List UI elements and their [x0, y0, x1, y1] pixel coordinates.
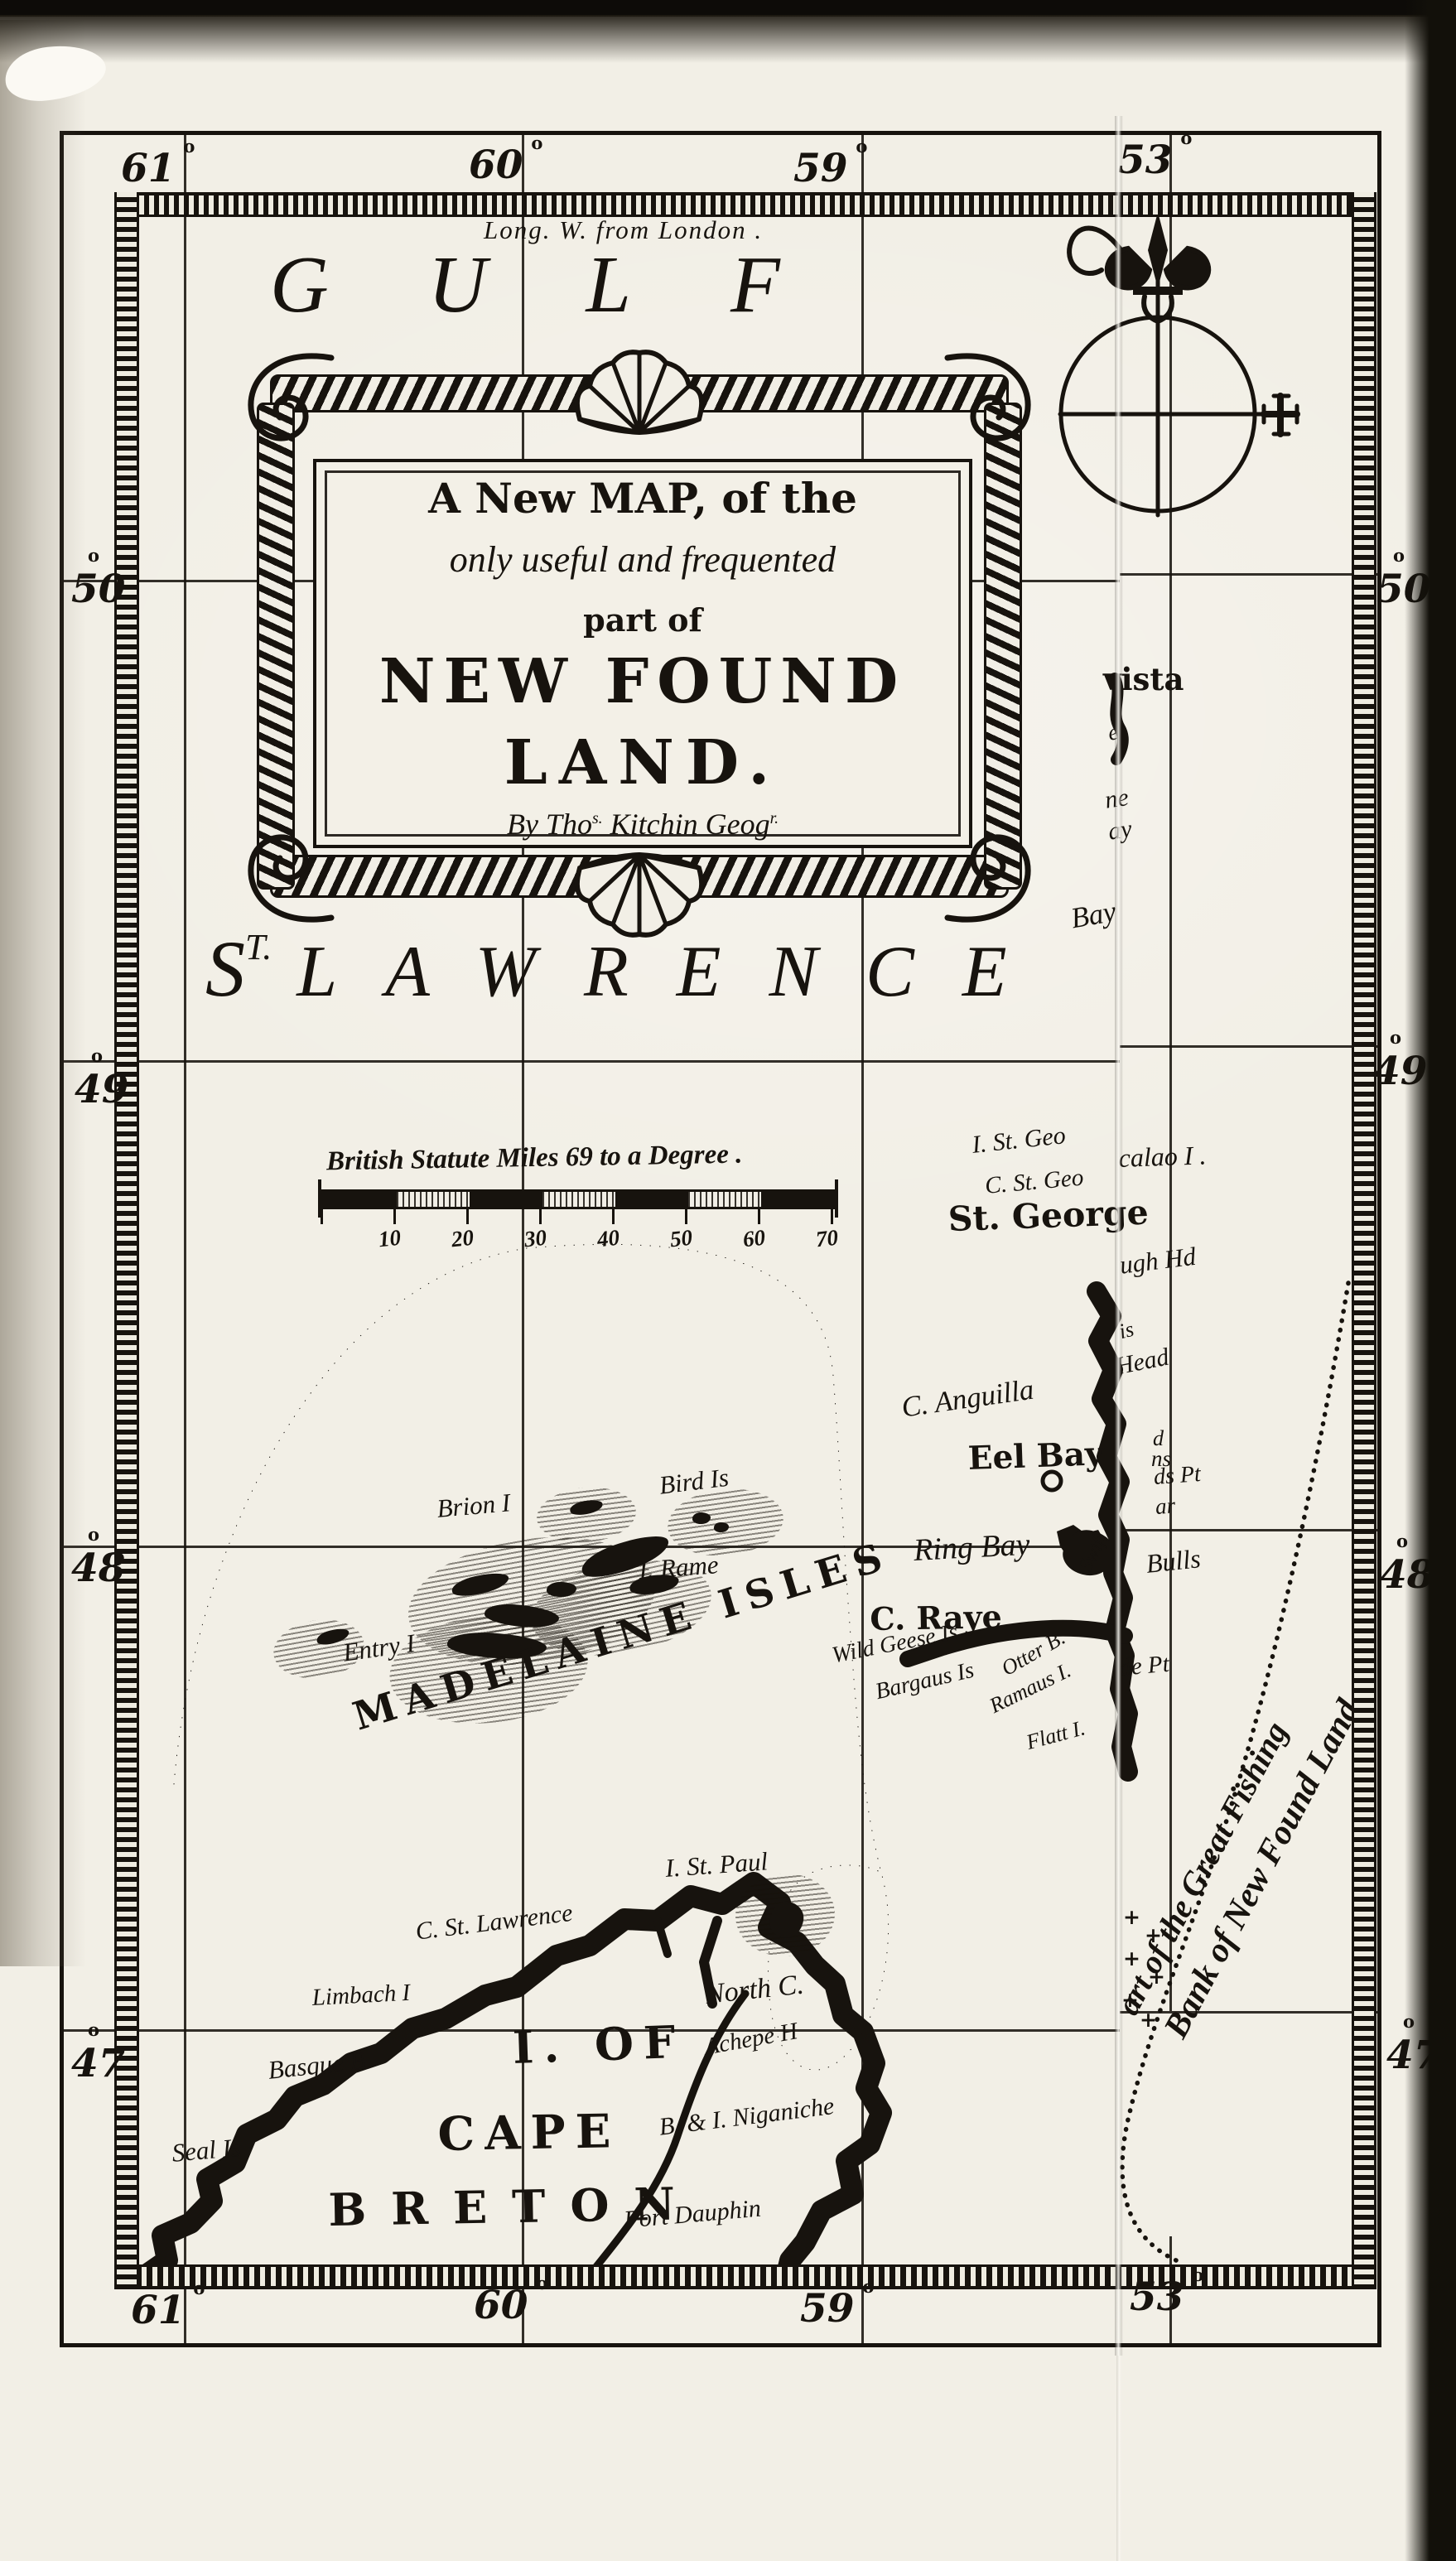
margin-degree-label: 61o [131, 2288, 185, 2333]
degree-mark: o [531, 133, 542, 153]
map-outer-border [60, 131, 1381, 2347]
margin-degree-label: 60o [469, 142, 523, 188]
margin-degree-label: 59o [793, 146, 847, 191]
degree-mark: o [862, 2276, 874, 2297]
paper-fold-crease [1116, 2356, 1121, 2561]
degree-mark: o [183, 136, 195, 157]
degree-number: 60 [469, 142, 523, 188]
map-neatline-right [1352, 192, 1376, 2289]
degree-mark: o [1180, 128, 1192, 148]
margin-degree-label: 53o [1130, 2274, 1184, 2320]
margin-degree-label: 60o [474, 2283, 528, 2328]
degree-number: 59 [793, 146, 847, 191]
degree-mark: o [1393, 545, 1405, 566]
map-neatline-bottom [114, 2264, 1376, 2289]
paper-fold-crease [1115, 116, 1123, 2356]
degree-mark: o [88, 1524, 99, 1545]
margin-degree-label: 59o [800, 2286, 854, 2332]
antique-map-page: Long. W. from London . GULF ST.LAWRENCE … [0, 0, 1456, 2561]
degree-mark: o [856, 136, 867, 157]
degree-mark: o [88, 2019, 99, 2040]
degree-mark: o [91, 1045, 103, 1066]
degree-number: 53 [1130, 2274, 1184, 2320]
margin-degree-label: 61o [121, 146, 175, 191]
map-neatline-left [114, 192, 139, 2289]
scan-edge-top [0, 0, 1456, 17]
degree-number: 60 [474, 2283, 528, 2328]
degree-mark: o [536, 2273, 547, 2293]
degree-mark: o [193, 2278, 205, 2298]
degree-number: 61 [131, 2288, 185, 2333]
degree-mark: o [88, 545, 99, 566]
degree-number: 59 [800, 2286, 854, 2332]
degree-number: 53 [1118, 137, 1172, 183]
map-neatline-top [114, 192, 1376, 217]
degree-number: 47 [71, 2041, 125, 2086]
scan-smear-top [0, 15, 1456, 63]
scan-shadow-left [0, 20, 86, 1966]
scan-edge-right [1405, 0, 1456, 2561]
degree-mark: o [1192, 2264, 1203, 2285]
margin-degree-label: 47o [71, 2041, 125, 2086]
margin-degree-label: 53o [1118, 137, 1172, 183]
degree-mark: o [1390, 1027, 1401, 1048]
degree-number: 61 [121, 146, 175, 191]
